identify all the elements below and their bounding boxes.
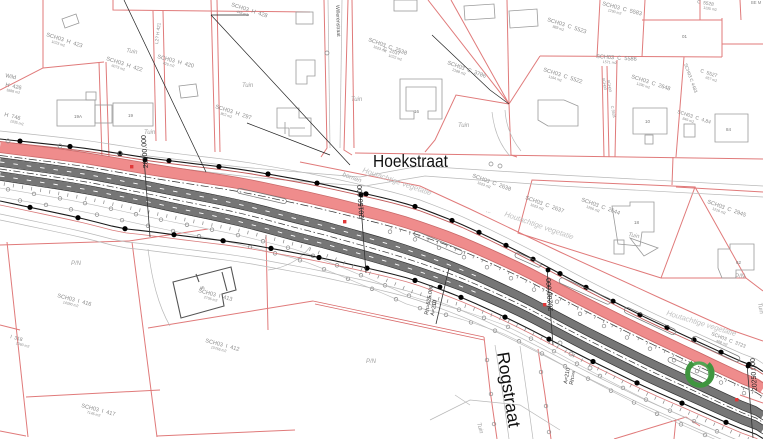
svg-text:16: 16 — [414, 109, 420, 114]
svg-text:BE M: BE M — [751, 0, 762, 5]
svg-text:Tuin: Tuin — [351, 97, 363, 103]
svg-text:Willerenstraat: Willerenstraat — [334, 5, 341, 37]
svg-text:01: 01 — [682, 34, 688, 39]
svg-text:18: 18 — [634, 220, 640, 225]
svg-text:Tuin: Tuin — [144, 130, 156, 136]
svg-text:Tuin: Tuin — [458, 123, 470, 129]
svg-text:62: 62 — [736, 260, 742, 265]
svg-text:Tuin: Tuin — [242, 83, 254, 89]
svg-text:P/N: P/N — [366, 359, 377, 365]
svg-text:84: 84 — [726, 127, 732, 132]
svg-text:10: 10 — [645, 119, 651, 124]
svg-text:P/N: P/N — [735, 274, 746, 280]
svg-text:19: 19 — [128, 113, 134, 118]
svg-text:Hoekstraat: Hoekstraat — [373, 151, 448, 171]
svg-text:P/N: P/N — [71, 261, 82, 267]
svg-text:19A: 19A — [74, 114, 82, 119]
